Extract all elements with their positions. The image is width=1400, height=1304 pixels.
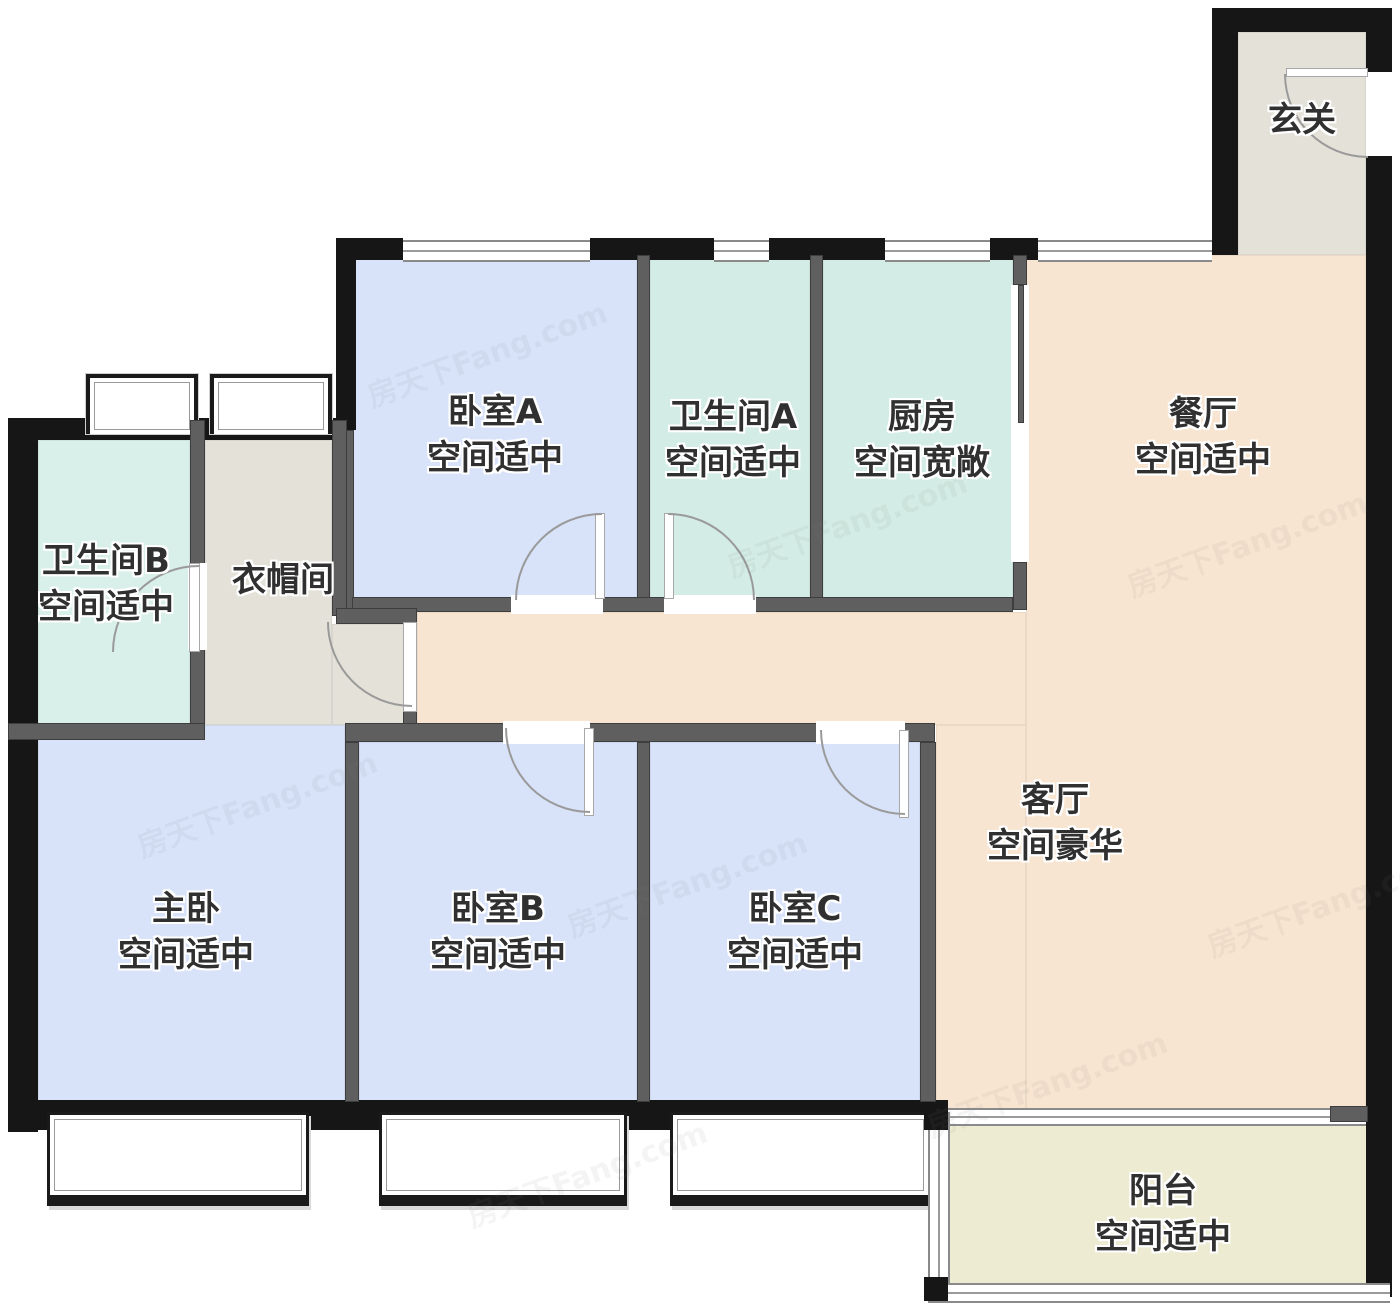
room-name: 卧室B — [430, 886, 566, 932]
opening-entry — [1366, 72, 1392, 156]
window-bath-a — [714, 240, 769, 262]
room-desc: 空间适中 — [727, 932, 863, 978]
room-label-closet: 衣帽间 — [232, 557, 334, 603]
room-label-bedroom-c: 卧室C 空间适中 — [727, 886, 863, 978]
balcony-bottom-window — [928, 1283, 1390, 1303]
window-dining — [1038, 240, 1212, 262]
room-desc: 空间适中 — [1095, 1214, 1231, 1260]
bay-window-bedroom-b — [379, 1112, 627, 1206]
room-name: 主卧 — [118, 886, 254, 932]
wall-bedroomb-bedroomc — [637, 742, 650, 1102]
balcony-top-window — [945, 1108, 1366, 1126]
room-desc: 空间适中 — [38, 584, 174, 630]
wall-master-bedroomb — [345, 742, 359, 1102]
wall-entry-right-upper — [1366, 8, 1392, 72]
room-name: 厨房 — [854, 394, 990, 440]
room-name: 玄关 — [1268, 97, 1336, 143]
room-desc: 空间适中 — [118, 932, 254, 978]
room-label-balcony: 阳台 空间适中 — [1095, 1168, 1231, 1260]
wall-top-seg3 — [769, 238, 885, 260]
room-name: 衣帽间 — [232, 557, 334, 603]
balcony-post-topleft — [924, 1108, 948, 1130]
kitchen-sliding-panel — [1018, 285, 1024, 423]
room-label-bedroom-b: 卧室B 空间适中 — [430, 886, 566, 978]
room-name: 卧室A — [427, 389, 563, 435]
wall-entry-left — [1212, 8, 1238, 255]
bay-window-bedroom-c — [670, 1112, 931, 1206]
wall-right-main — [1366, 255, 1392, 1297]
wall-kitchen-right-lower — [1013, 562, 1027, 610]
wall-entry-top — [1212, 8, 1392, 32]
room-name: 卫生间A — [665, 394, 801, 440]
wall-bedrooma-left-ext — [336, 238, 356, 430]
bay-window-bath-b — [86, 374, 198, 434]
room-name: 卧室C — [727, 886, 863, 932]
room-label-master: 主卧 空间适中 — [118, 886, 254, 978]
room-label-living: 客厅 空间豪华 — [987, 777, 1123, 869]
room-name: 客厅 — [987, 777, 1123, 823]
room-desc: 空间适中 — [430, 932, 566, 978]
room-name: 阳台 — [1095, 1168, 1231, 1214]
wall-bedrooma-batha — [637, 255, 650, 610]
wall-kitchen-right-upper — [1013, 255, 1027, 285]
room-label-kitchen: 厨房 空间宽敞 — [854, 394, 990, 486]
window-kitchen — [885, 240, 990, 262]
room-label-bedroom-a: 卧室A 空间适中 — [427, 389, 563, 481]
wall-bathb-bottom — [8, 723, 205, 740]
room-fill-dining-living — [1026, 255, 1366, 1110]
room-desc: 空间宽敞 — [854, 440, 990, 486]
bay-window-master — [47, 1112, 309, 1206]
bay-window-closet — [210, 374, 332, 434]
room-fill-corridor — [417, 612, 1026, 725]
room-desc: 空间适中 — [427, 435, 563, 481]
floor-plan-canvas: 玄关 餐厅 空间适中 卧室A 空间适中 卫生间A 空间适中 厨房 空间宽敞 卫生… — [0, 0, 1400, 1304]
balcony-left-window — [928, 1112, 950, 1297]
wall-batha-kitchen — [810, 255, 823, 610]
room-label-bath-a: 卫生间A 空间适中 — [665, 394, 801, 486]
balcony-post-bottomleft — [924, 1277, 948, 1301]
wall-closet-right — [332, 420, 347, 616]
wall-left-main — [8, 418, 38, 1132]
room-label-entry: 玄关 — [1268, 97, 1336, 143]
wall-bedroomc-right — [920, 742, 936, 1102]
room-desc: 空间适中 — [1135, 437, 1271, 483]
room-name: 卫生间B — [38, 538, 174, 584]
wall-entry-right-lower — [1366, 156, 1392, 255]
room-label-bath-b: 卫生间B 空间适中 — [38, 538, 174, 630]
room-desc: 空间适中 — [665, 440, 801, 486]
room-desc: 空间豪华 — [987, 823, 1123, 869]
room-label-dining: 餐厅 空间适中 — [1135, 391, 1271, 483]
window-bedroom-a — [403, 240, 590, 262]
wall-top-seg2 — [590, 238, 714, 260]
balcony-top-wall-stub — [1330, 1106, 1368, 1122]
room-name: 餐厅 — [1135, 391, 1271, 437]
